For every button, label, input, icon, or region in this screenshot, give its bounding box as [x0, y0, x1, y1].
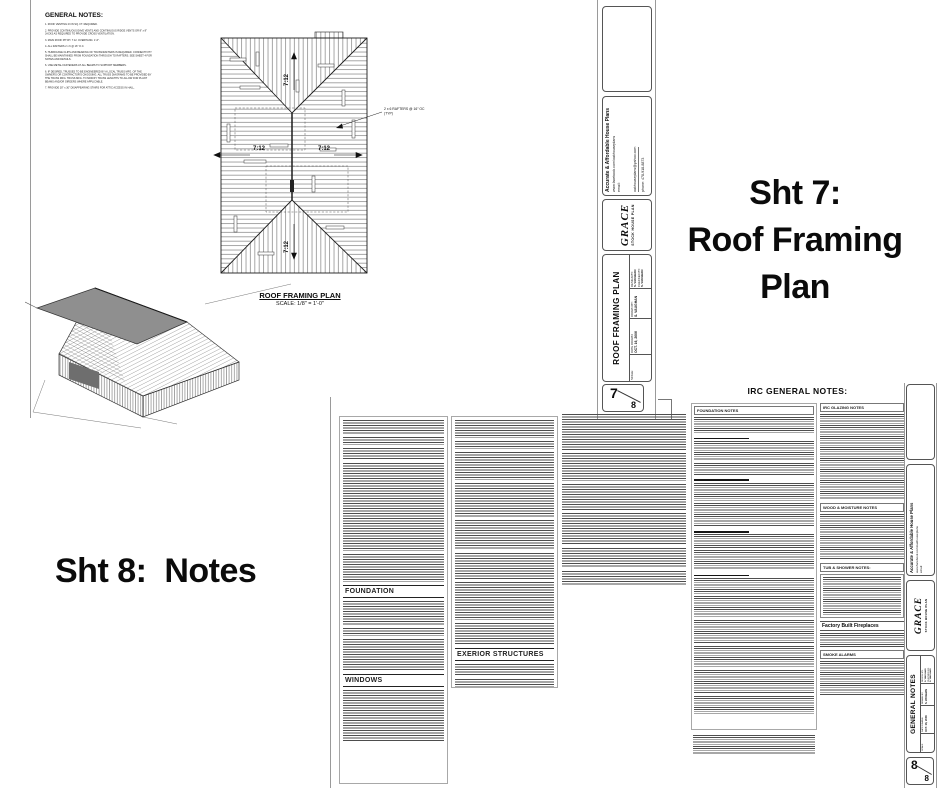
- titleblock-disclaimer: [602, 6, 652, 92]
- roof-framing-plan-drawing: 7:12 7:12 7:12 7:12 2 x 6 RAFTERS @ 16" …: [200, 28, 495, 290]
- sheet7-annotation-line3: Plan: [660, 264, 930, 311]
- irc-wood-moisture-header: WOOD & MOISTURE NOTES: [820, 503, 904, 512]
- general-note-item: 6. IF DESIRED, TRUSSES TO BE ENGINEERED …: [45, 70, 153, 83]
- email-address: oakhouseplans@yahoo.com: [633, 147, 639, 192]
- general-note-item: 3. MAIN ROOF PITCH: 7:12. OVERHANG: 1'-6…: [45, 39, 153, 42]
- foundation-header: FOUNDATION: [343, 585, 444, 598]
- extension-line: [205, 284, 291, 304]
- scale-label: SCALE:: [922, 735, 925, 751]
- pitch-label: 7:12: [284, 240, 290, 253]
- title-fields-row: SCALE: DATE DRAWN: OCT. 16, 2006 DRAWN B…: [629, 255, 651, 381]
- sheet-total: 8: [631, 400, 636, 410]
- brand-logo: GRACE: [914, 597, 924, 634]
- checked-value: S. VAUGHAN: [641, 256, 644, 287]
- titleblock-contact-text: Accurate & Affordable House Plans www.fa…: [603, 97, 651, 195]
- framing-3d-view: [25, 262, 297, 437]
- general-note-item: 6. USE METAL FASTENERS AT ALL BEAMS TO S…: [45, 64, 153, 67]
- date-value: OCT. 16, 2006: [925, 707, 928, 732]
- sheet7-right-border: [655, 0, 656, 420]
- sheet7-annotation-line2: Roof Framing: [660, 217, 930, 264]
- sheet-title-rot: ROOF FRAMING PLAN SCALE: DATE DRAWN: OCT…: [603, 255, 651, 381]
- sheet-title-rot-8: GENERAL NOTES SCALE: DATE DRAWN: OCT. 16…: [907, 656, 934, 752]
- date-field: DATE DRAWN: OCT. 16, 2006: [630, 319, 651, 355]
- irc-smoke-alarms-header: SMOKE ALARMS: [820, 650, 904, 659]
- drawn-value: S. VAUGHAN: [634, 290, 638, 317]
- brand-logo: GRACE: [619, 204, 631, 246]
- irc-glazing-header: IRC GLAZING NOTES: [820, 403, 904, 412]
- sheet-number-box: 7 8: [602, 384, 644, 412]
- pitch-label: 7:12: [284, 73, 290, 86]
- phone-number: phone: 478-918-8873: [641, 100, 646, 192]
- general-note-item: 1. ROOF VENTING 23 IN SQ. FT. REQUIRED.: [45, 23, 153, 26]
- sheet8-annotation: Sht 8: Notes: [55, 552, 256, 591]
- fold-bracket: [658, 399, 672, 400]
- scale-field: SCALE:: [630, 355, 651, 381]
- general-note-item: 5. HURRICANE CLIPS AND BEARING OF TRUSS/…: [45, 51, 153, 61]
- scale-label: SCALE:: [631, 356, 634, 380]
- sheet8-right-border: [936, 383, 937, 788]
- titleblock-border-8: [904, 383, 905, 788]
- titleblock-disclaimer-8: [906, 384, 935, 460]
- sheet7-annotation-line1: Sht 7:: [660, 170, 930, 217]
- brand-subtitle: STOCK HOUSE PLAN: [924, 599, 928, 633]
- email-label: email:: [617, 100, 622, 192]
- general-notes-title: GENERAL NOTES:: [45, 12, 103, 19]
- design-checked-field: DESIGN BY: S. VAUGHAN CHECKED BY: S. VAU…: [921, 656, 934, 684]
- sheet-title: GENERAL NOTES: [907, 656, 920, 752]
- notes-column-3: [562, 414, 686, 594]
- drawn-value: S. VAUGHAN: [925, 685, 928, 704]
- date-value: OCT. 16, 2006: [634, 320, 638, 353]
- titleblock-border: [597, 0, 598, 420]
- checked-value: S. VAUGHAN: [930, 657, 933, 682]
- drawn-field: DRAWN BY: S. VAUGHAN: [921, 684, 934, 706]
- sheet-number-box-8: 8 8: [906, 757, 934, 785]
- pitch-label: 7:12: [253, 146, 266, 152]
- roof-notch: [315, 32, 343, 38]
- brand-logo-wrap: GRACE STOCK HOUSE PLAN: [603, 200, 651, 250]
- sheet-number: 7: [610, 385, 618, 401]
- exterior-structures-header: EXERIOR STRUCTURES: [455, 648, 554, 661]
- ground-line: [143, 417, 177, 424]
- irc-tub-shower-header: TUB & SHOWER NOTES:: [820, 563, 904, 572]
- sheet-title: ROOF FRAMING PLAN: [603, 255, 629, 381]
- irc-fireplace-header: Factory Built Fireplaces: [820, 621, 904, 631]
- notes-column-2: EXERIOR STRUCTURES: [451, 416, 558, 688]
- screenshot-canvas: GENERAL NOTES: 1. ROOF VENTING 23 IN SQ.…: [0, 0, 940, 788]
- general-notes-list: 1. ROOF VENTING 23 IN SQ. FT. REQUIRED. …: [45, 23, 157, 119]
- irc-tub-shower-box: [820, 574, 904, 618]
- email-address: oakhouseplans@yahoo.com: [933, 535, 934, 573]
- rafter-callout-typ: (TYP): [384, 112, 393, 116]
- scale-field: SCALE:: [921, 734, 934, 752]
- irc-title: IRC GENERAL NOTES:: [691, 386, 904, 396]
- irc-left-column: FOUNDATION NOTES: [691, 403, 817, 730]
- general-note-item: 2. PROVIDE CONTINUOUS EAVE VENTS AND CON…: [45, 29, 153, 36]
- titleblock-contact-text-8: Accurate & Affordable House Plans www.fa…: [907, 465, 934, 575]
- general-note-item: 7. PROVIDE 30" x 30" DISAPPEARING STAIRS…: [45, 86, 153, 89]
- brand-logo-wrap-8: GRACE STOCK HOUSE PLAN: [907, 581, 934, 650]
- windows-header: WINDOWS: [343, 674, 444, 687]
- brand-subtitle: STOCK HOUSE PLAN: [631, 204, 635, 245]
- date-field: DATE DRAWN: OCT. 16, 2006: [921, 706, 934, 734]
- notes-column-1: FOUNDATION WINDOWS: [339, 416, 448, 784]
- general-note-item: 4. ALL RAFTERS 2 x 6 @ 16" O.C.: [45, 45, 153, 48]
- title-fields-row-8: SCALE: DATE DRAWN: OCT. 16, 2006 DRAWN B…: [920, 656, 934, 752]
- irc-section: IRC GENERAL NOTES: FOUNDATION NOTES I: [691, 386, 904, 762]
- company-name: Accurate & Affordable House Plans: [605, 100, 612, 192]
- sheet8-left-border: [330, 397, 331, 788]
- design-checked-field: DESIGN BY: S. VAUGHAN CHECKED BY: S. VAU…: [630, 255, 651, 289]
- irc-foundation-notes-header: FOUNDATION NOTES: [694, 406, 814, 415]
- irc-left-continuation: [693, 735, 815, 755]
- sheet-total: 8: [925, 774, 929, 783]
- irc-right-column: IRC GLAZING NOTES WOOD & MOISTURE NOTES …: [820, 403, 904, 695]
- ridge-block: [290, 180, 294, 192]
- drawn-field: DRAWN BY: S. VAUGHAN: [630, 289, 651, 319]
- pitch-label: 7:12: [318, 146, 331, 152]
- rafter-callout: 2 x 6 RAFTERS @ 16" OC: [384, 107, 425, 111]
- sheet-number-slash: [617, 390, 641, 403]
- sheet7-annotation: Sht 7: Roof Framing Plan: [660, 170, 930, 311]
- email-label: email:: [919, 467, 923, 573]
- clipped-edge: [25, 302, 37, 308]
